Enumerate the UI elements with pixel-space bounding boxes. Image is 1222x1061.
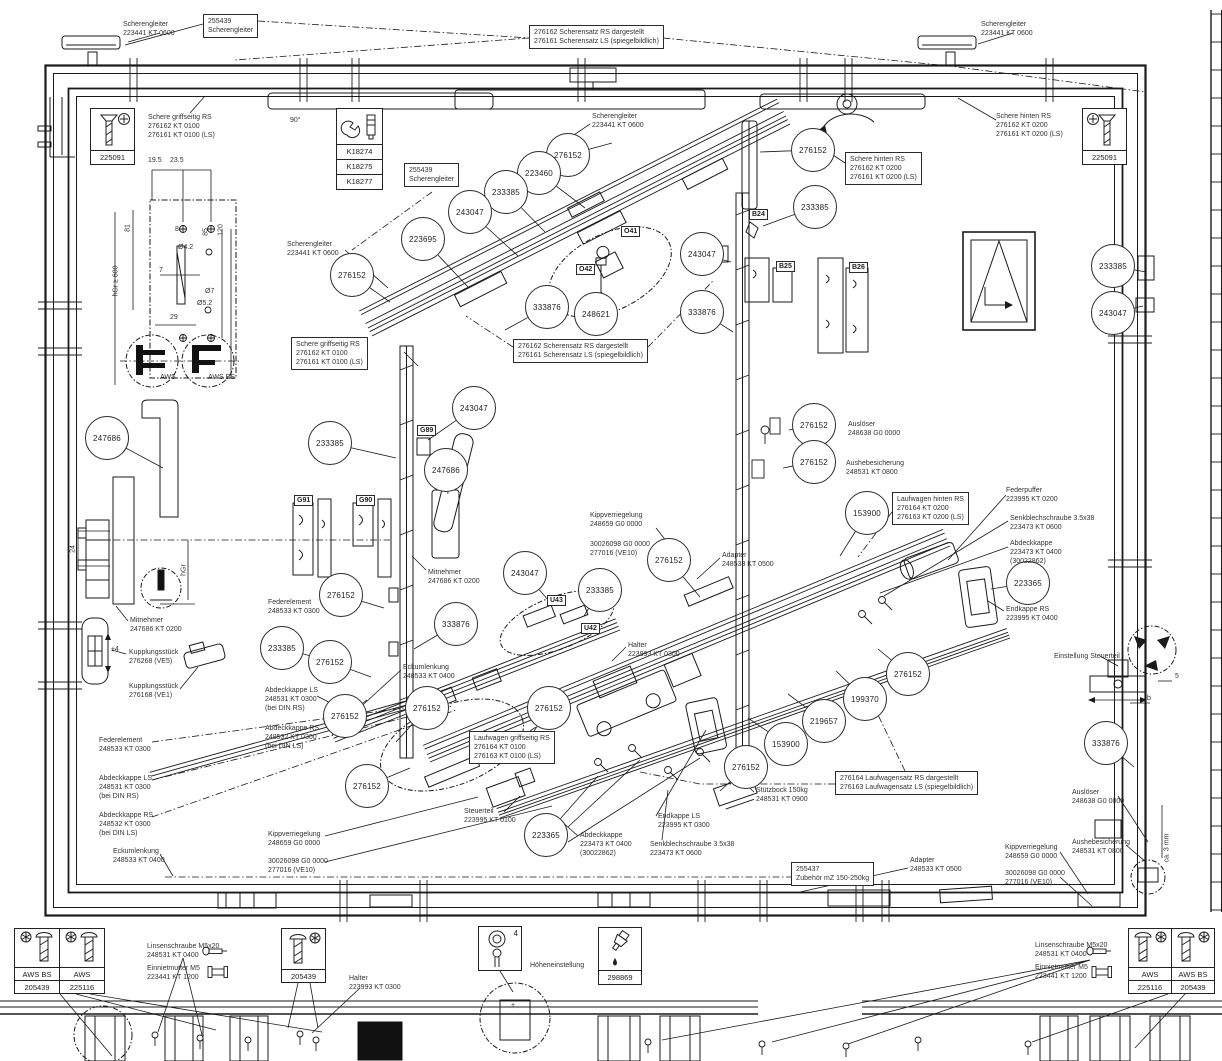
part-label: Abdeckkappe 223473 KT 0400 (30022862) xyxy=(1010,539,1062,566)
countersunk-screw-icon xyxy=(91,109,134,150)
dimension-text: Ø5.2 xyxy=(197,300,212,307)
boxed-part-label: Schere griffseitig RS 276162 KT 0100 276… xyxy=(291,337,368,370)
oil-bottle-icon xyxy=(599,928,641,970)
part-number-callout: 243047 xyxy=(503,551,547,595)
part-label: Schere hinten RS 276162 KT 0200 276161 K… xyxy=(996,112,1063,139)
part-label: Eckumlenkung 248533 KT 0400 xyxy=(403,663,455,681)
dimension-text: hGr ≥ 600 xyxy=(113,265,120,296)
part-label: Kupplungsstück 276268 (VE5) xyxy=(129,648,178,666)
part-number-callout: 333876 xyxy=(434,602,478,646)
legend-fixing-box-left: AWS BS 205439 AWS 225116 xyxy=(14,928,105,994)
part-number: 225116 xyxy=(1129,980,1171,993)
boxed-part-label: Laufwagen hinten RS 276164 KT 0200 27616… xyxy=(892,492,969,525)
part-number-callout: 276152 xyxy=(319,573,363,617)
part-label: Einnietmutter M5 223441 KT 1200 xyxy=(1035,963,1088,981)
dimension-text: 29 xyxy=(170,314,178,321)
part-label: Auslöser 248638 G0 0000 xyxy=(848,420,900,438)
part-number-callout: 333876 xyxy=(680,290,724,334)
part-number-callout: 247686 xyxy=(424,448,468,492)
part-number-callout: 153900 xyxy=(845,491,889,535)
part-label: Federelement 248533 KT 0300 xyxy=(268,598,320,616)
torx-screw-icon xyxy=(1129,929,1171,967)
part-number-callout: 333876 xyxy=(525,285,569,329)
boxed-part-label: Laufwagen griffseitig RS 276164 KT 0100 … xyxy=(469,731,555,764)
part-number-callout: 243047 xyxy=(448,190,492,234)
part-label: Mitnehmer 247686 KT 0200 xyxy=(428,568,480,586)
part-number-callout: 276152 xyxy=(345,764,389,808)
system-label: AWS BS xyxy=(15,967,59,980)
dimension-text: 24 xyxy=(70,545,77,553)
part-label: Höheneinstellung xyxy=(530,961,584,970)
part-label: Endkappe LS 223995 KT 0300 xyxy=(658,812,710,830)
part-number-callout: 276152 xyxy=(791,128,835,172)
part-number-callout: 223695 xyxy=(401,217,445,261)
part-number-callout: 276152 xyxy=(323,694,367,738)
part-label: Halter 223993 KT 0300 xyxy=(349,974,401,992)
part-label: Abdeckkappe RS 248532 KT 0300 (bei DIN L… xyxy=(265,724,319,751)
part-number-callout: 219657 xyxy=(802,699,846,743)
legend-height-adjust-box: 4 xyxy=(478,926,522,971)
part-label: Mitnehmer 247686 KT 0200 xyxy=(130,616,182,634)
part-label: Einnietmutter M5 223441 KT 1200 xyxy=(147,964,200,982)
part-number-callout: 243047 xyxy=(680,232,724,276)
dimension-text: 7 xyxy=(159,267,163,274)
part-number-callout: 248621 xyxy=(574,292,618,336)
dimension-text: 90° xyxy=(290,117,301,124)
dimension-text: + xyxy=(511,1002,515,1009)
part-number-callout: 276152 xyxy=(886,652,930,696)
part-number: 225091 xyxy=(1083,150,1126,164)
ref-tag: U43 xyxy=(547,595,566,606)
part-number-callout: 233385 xyxy=(308,421,352,465)
part-number-callout: 276152 xyxy=(527,686,571,730)
part-number-callout: 333876 xyxy=(1084,721,1128,765)
legend-tool-box: K18274 K18275 K18277 xyxy=(336,108,383,190)
part-number-callout: 276152 xyxy=(647,538,691,582)
part-label: Stützbock 150kg 248531 KT 0900 xyxy=(756,786,808,804)
part-number: 205439 xyxy=(15,980,59,993)
part-number-callout: 233385 xyxy=(793,185,837,229)
part-label: Endkappe RS 223995 KT 0400 xyxy=(1006,605,1058,623)
legend-halter-screw-box: 205439 xyxy=(281,928,326,983)
dimension-text: 5 xyxy=(1175,673,1179,680)
part-label: Abdeckkappe RS 248532 KT 0300 (bei DIN L… xyxy=(99,811,153,838)
part-number-callout: 276152 xyxy=(330,253,374,297)
boxed-part-label: 255439 Scherengleiter xyxy=(203,14,258,38)
ref-tag: G90 xyxy=(356,495,375,506)
dimension-text: hGr xyxy=(181,564,188,576)
part-label: Abdeckkappe LS 248531 KT 0300 (bei DIN R… xyxy=(99,774,152,801)
boxed-part-label: Schere hinten RS 276162 KT 0200 276161 K… xyxy=(845,152,922,185)
boxed-part-label: 276164 Laufwagensatz RS dargestellt 2761… xyxy=(835,771,978,795)
dimension-text: Ø4.2 xyxy=(178,244,193,251)
countersunk-screw-icon xyxy=(1083,109,1126,150)
dimension-text: 81 xyxy=(125,224,132,232)
part-label: Senkblechschraube 3.5x38 223473 KT 0600 xyxy=(650,840,734,858)
part-number-callout: 223365 xyxy=(524,813,568,857)
part-number-callout: 153900 xyxy=(764,722,808,766)
torx-screw-icon xyxy=(1172,929,1214,967)
system-label: AWS xyxy=(1129,967,1171,980)
dimension-text: ±4 xyxy=(111,646,119,653)
part-label: Scherengleiter 223441 KT 0600 xyxy=(123,20,175,38)
part-label: Scherengleiter 223441 KT 0600 xyxy=(592,112,644,130)
part-label: Auslöser 248638 G0 0000 xyxy=(1072,788,1124,806)
boxed-part-label: 255439 Scherengleiter xyxy=(404,163,459,187)
part-number-callout: 276152 xyxy=(792,440,836,484)
dimension-text: 19.5 xyxy=(148,157,162,164)
part-number: 205439 xyxy=(1172,980,1214,993)
exploded-assembly-diagram: 2761522234602333852430472236952761523338… xyxy=(0,0,1222,1061)
dimension-text: − xyxy=(511,1011,515,1018)
system-label: AWS BS xyxy=(1172,967,1214,980)
system-label: AWS xyxy=(60,967,104,980)
part-label: 30026098 G0 0000 277016 (VE10) xyxy=(268,857,328,875)
part-number-callout: 233385 xyxy=(578,568,622,612)
part-number-callout: 243047 xyxy=(452,386,496,430)
boxed-part-label: 255437 Zubehör mZ 150-250kg xyxy=(791,862,874,886)
part-number: 225091 xyxy=(91,150,134,164)
part-label: Adapter 248533 KT 0500 xyxy=(722,551,774,569)
part-number-callout: 233385 xyxy=(1091,244,1135,288)
part-label: Scherengleiter 223441 KT 0600 xyxy=(287,240,339,258)
part-label: Adapter 248533 KT 0500 xyxy=(910,856,962,874)
legend-lubricant-box: 298869 xyxy=(598,927,642,985)
part-label: Halter 223993 KT 0300 xyxy=(628,641,680,659)
ref-tag: O42 xyxy=(576,264,595,275)
legend-screw-box-left: 225091 xyxy=(90,108,135,165)
ref-tag: B26 xyxy=(849,262,868,273)
dimension-text: 85 xyxy=(203,228,210,236)
part-label: Aushebesicherung 248531 KT 0800 xyxy=(1072,838,1130,856)
part-label: 30026098 G0 0000 277016 (VE10) xyxy=(1005,869,1065,887)
part-number-callout: 233385 xyxy=(260,626,304,670)
part-number: 205439 xyxy=(282,969,325,983)
dimension-text: Ø7 xyxy=(205,288,214,295)
boxed-part-label: 276162 Scherensatz RS dargestellt 276161… xyxy=(513,339,648,363)
part-label: Kippverriegelung 248659 G0 0000 xyxy=(590,511,643,529)
part-label: Abdeckkappe 223473 KT 0400 (30022862) xyxy=(580,831,632,858)
ref-tag: B25 xyxy=(776,261,795,272)
part-label: 30026098 G0 0000 277016 (VE10) xyxy=(590,540,650,558)
torx-screw-icon xyxy=(60,929,104,967)
torx-screw-icon xyxy=(15,929,59,967)
allen-key-size: 4 xyxy=(514,929,518,938)
ref-tag: O41 xyxy=(621,226,640,237)
part-number: 298869 xyxy=(599,970,641,984)
ref-tag: G91 xyxy=(294,495,313,506)
part-label: Schere griffseitig RS 276162 KT 0100 276… xyxy=(148,113,215,140)
part-label: Federpuffer 223995 KT 0200 xyxy=(1006,486,1058,504)
part-number-callout: 276152 xyxy=(405,686,449,730)
part-label: Kippverriegelung 248659 G0 0000 xyxy=(1005,843,1058,861)
dimension-text: AWS xyxy=(160,374,176,381)
tool-number: K18274 xyxy=(337,144,382,159)
part-number-callout: 276152 xyxy=(308,640,352,684)
part-label: Einstellung Steuerteil xyxy=(1054,652,1120,661)
part-label: Linsenschraube M5x20 248531 KT 0400 xyxy=(147,942,219,960)
torx-screw-icon xyxy=(282,929,325,969)
part-label: Scherengleiter 223441 KT 0600 xyxy=(981,20,1033,38)
part-label: Steuerteil 223995 KT 0100 xyxy=(464,807,516,825)
ref-tag: B24 xyxy=(749,209,768,220)
part-label: Federelement 248533 KT 0300 xyxy=(99,736,151,754)
dimension-text: AWS BS xyxy=(208,374,235,381)
part-label: Kupplungsstück 276168 (VE1) xyxy=(129,682,178,700)
ref-tag: U42 xyxy=(581,623,600,634)
dimension-text: 23.5 xyxy=(170,157,184,164)
part-label: Abdeckkappe LS 248531 KT 0300 (bei DIN R… xyxy=(265,686,318,713)
part-label: Senkblechschraube 3.5x38 223473 KT 0600 xyxy=(1010,514,1094,532)
legend-screw-box-right: 225091 xyxy=(1082,108,1127,165)
tool-number: K18275 xyxy=(337,159,382,174)
dimension-text: b xyxy=(1147,695,1151,702)
wrench-icon xyxy=(337,109,382,144)
part-label: Aushebesicherung 248531 KT 0800 xyxy=(846,459,904,477)
part-number: 225116 xyxy=(60,980,104,993)
part-number-callout: 199370 xyxy=(843,677,887,721)
part-label: Linsenschraube M5x20 248531 KT 0400 xyxy=(1035,941,1107,959)
legend-fixing-box-right: AWS 225116 AWS BS 205439 xyxy=(1128,928,1215,994)
part-label: Kippverriegelung 248659 G0 0000 xyxy=(268,830,321,848)
boxed-part-label: 276162 Scherensatz RS dargestellt 276161… xyxy=(529,25,664,49)
part-number-callout: 247686 xyxy=(85,416,129,460)
part-number-callout: 243047 xyxy=(1091,291,1135,335)
ref-tag: G89 xyxy=(417,425,436,436)
dimension-text: 120 xyxy=(218,224,225,236)
dimension-text: ca. 3 mm xyxy=(1164,834,1171,863)
part-label: Eckumlenkung 248533 KT 0400 xyxy=(113,847,165,865)
dimension-text: 8 xyxy=(175,226,179,233)
tool-number: K18277 xyxy=(337,174,382,189)
part-number-callout: 223365 xyxy=(1006,561,1050,605)
part-number-callout: 276152 xyxy=(724,745,768,789)
